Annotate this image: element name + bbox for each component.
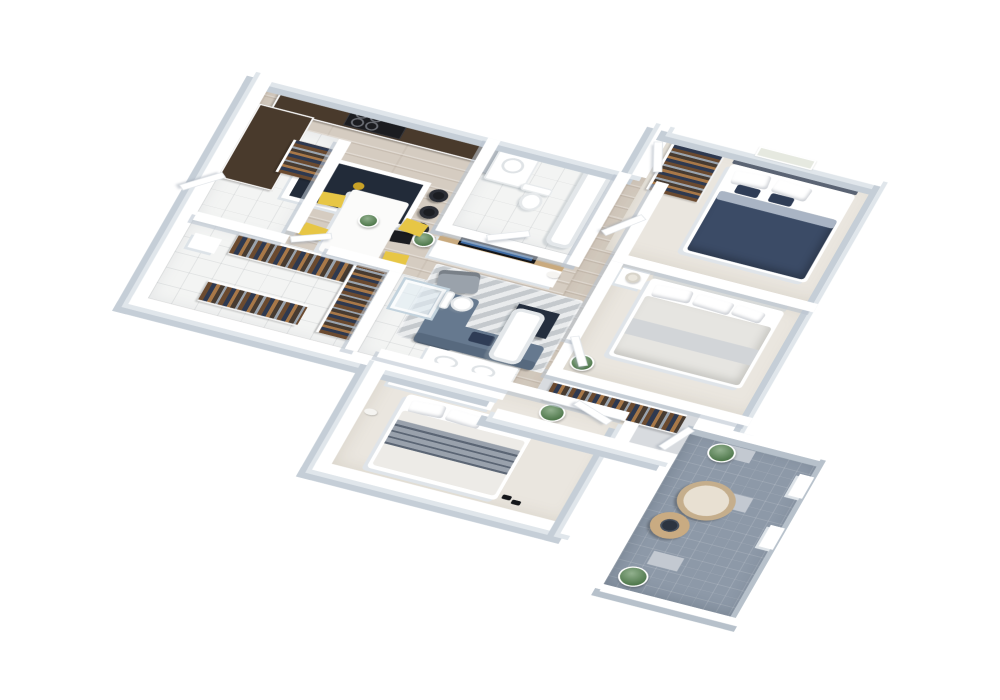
floor-plan-stage — [0, 0, 1000, 700]
apartment-floor-plan — [10, 17, 989, 643]
door-entry-hall — [654, 142, 662, 171]
